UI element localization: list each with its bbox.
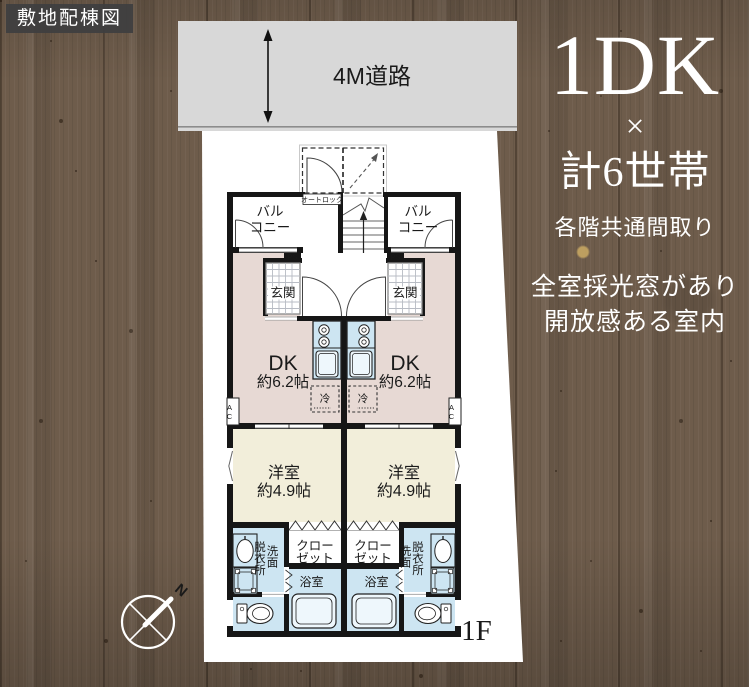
western-right-size: 約4.9帖	[377, 482, 431, 500]
closet-right-line2: ゼット	[354, 552, 392, 566]
dk-left-label: DK	[268, 352, 297, 375]
ps-left-label: PS	[288, 255, 298, 262]
western-left-size: 約4.9帖	[257, 482, 311, 500]
promo-panel: 1DK × 計6世帯 各階共通間取り 全室採光窓があり 開放感ある室内	[527, 22, 743, 340]
road-label: 4M道路	[333, 63, 411, 89]
multiply-sign: ×	[527, 111, 743, 144]
stairwell-core	[300, 145, 390, 265]
porch-dashed-outline	[303, 148, 384, 193]
washroom-left-label: 洗面	[266, 545, 279, 568]
dk-right-size: 約6.2帖	[379, 373, 432, 391]
entrance-left-label: 玄関	[270, 285, 295, 300]
dk-right-label: DK	[390, 352, 419, 375]
compass-north-label: N	[171, 581, 190, 601]
road: 4M道路	[178, 21, 517, 131]
compass-needle	[145, 599, 171, 625]
entry-hall-floor	[300, 253, 344, 316]
site-plan-badge: 敷地配棟図	[6, 4, 133, 33]
road-edge-line	[178, 126, 517, 128]
closet-left-line2: ゼット	[296, 552, 334, 566]
fridge-right-label: 冷	[358, 392, 369, 405]
bathtub	[292, 594, 336, 628]
dressing-right-label: 脱衣所	[411, 540, 424, 576]
compass: N	[122, 581, 191, 648]
floor-label: 1F	[461, 615, 492, 647]
page: { "badge": { "label": "敷地配棟図" }, "road":…	[0, 0, 749, 687]
western-right-label: 洋室	[388, 464, 420, 482]
unit-right	[344, 192, 461, 637]
sink	[316, 351, 338, 377]
washroom-right-label: 洗面	[399, 545, 412, 568]
ac-left-label: AC	[225, 403, 234, 421]
toilet	[237, 604, 273, 624]
bath-right-label: 浴室	[364, 574, 388, 589]
western-left-label: 洋室	[268, 464, 300, 482]
dressing-left-label: 脱衣所	[253, 540, 266, 576]
site-plan-badge-label: 敷地配棟図	[17, 8, 122, 29]
corridor-floor	[302, 197, 338, 262]
balcony-left-line1: バル	[257, 204, 284, 219]
balcony-left-line2: コニー	[250, 220, 291, 235]
bath-left-label: 浴室	[299, 574, 323, 589]
ac-right-label: AC	[447, 403, 456, 421]
ps-right-label: PS	[391, 255, 401, 262]
autolock-label: オートロック	[301, 196, 343, 204]
balcony-right-line1: バル	[405, 204, 432, 219]
fridge-left-label: 冷	[320, 392, 331, 405]
promo-households: 計6世帯	[527, 151, 743, 195]
balcony-right-line2: コニー	[398, 220, 439, 235]
kitchen-unit	[313, 321, 341, 379]
unit-left	[227, 192, 344, 637]
promo-subtitle: 各階共通間取り	[527, 210, 743, 242]
promo-title: 1DK	[527, 22, 743, 108]
dk-left-size: 約6.2帖	[257, 373, 310, 391]
promo-desc-line2: 開放感ある室内	[527, 306, 743, 341]
promo-desc-line1: 全室採光窓があり	[527, 271, 743, 306]
promo-description: 全室採光窓があり 開放感ある室内	[527, 271, 743, 340]
entrance-right-label: 玄関	[392, 285, 417, 300]
